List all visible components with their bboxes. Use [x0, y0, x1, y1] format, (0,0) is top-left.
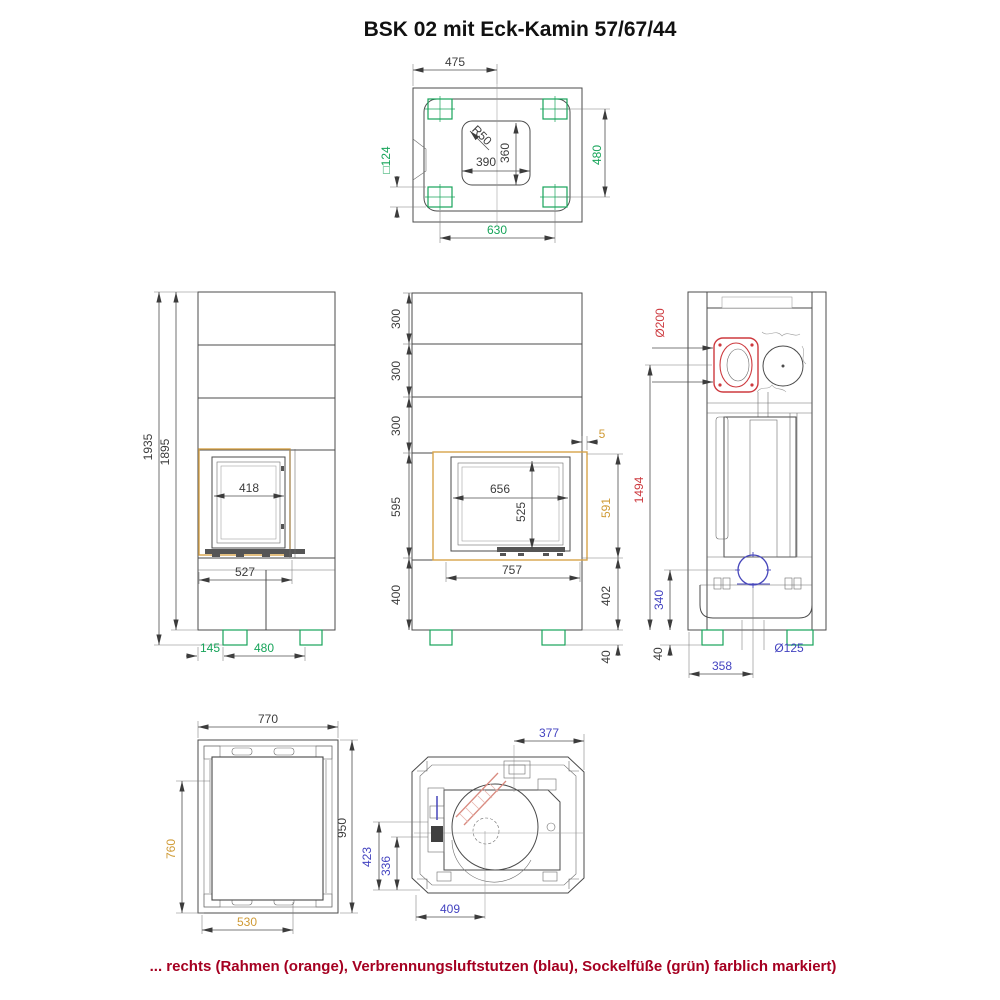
- dim-door-width-left: 418: [239, 481, 259, 495]
- dim-stub-depth-b: 336: [379, 856, 393, 876]
- dim-panel-depth: 760: [164, 839, 178, 859]
- dim-door-height-main: 525: [514, 502, 528, 522]
- dim-top-opening-depth: 360: [498, 143, 512, 163]
- dim-total-height: 1935: [141, 433, 155, 460]
- base-panel: [212, 757, 323, 900]
- drawing-canvas: BSK 02 mit Eck-Kamin 57/67/44: [0, 0, 1000, 1000]
- dim-fan-offset: 409: [440, 902, 460, 916]
- dim-body-height: 1895: [158, 438, 172, 465]
- dim-foot-height-side: 40: [651, 647, 665, 661]
- color-legend-caption: ... rechts (Rahmen (orange), Verbrennung…: [150, 958, 837, 975]
- dim-segment-3: 300: [389, 416, 403, 436]
- dim-base-width: 770: [258, 712, 278, 726]
- dim-panel-width: 530: [237, 915, 257, 929]
- dim-top-width: 475: [445, 55, 465, 69]
- dim-top-feet-span: 630: [487, 223, 507, 237]
- technical-drawing-page: BSK 02 mit Eck-Kamin 57/67/44: [0, 0, 1000, 1000]
- dim-top-opening-width: 390: [476, 155, 496, 169]
- dim-frame-height: 591: [599, 498, 613, 518]
- grate-main-view: [497, 547, 565, 552]
- dim-foot-height-main: 40: [599, 650, 613, 664]
- dim-niche-width-left: 527: [235, 565, 255, 579]
- dim-top-foot-size: □124: [379, 146, 393, 174]
- dim-base-depth: 950: [335, 818, 349, 838]
- dim-stub-offset: 358: [712, 659, 732, 673]
- dim-stub-center-height: 340: [652, 590, 666, 610]
- dim-niche-height: 595: [389, 497, 403, 517]
- dim-top-feet-depth: 480: [590, 145, 604, 165]
- page-title: BSK 02 mit Eck-Kamin 57/67/44: [364, 18, 677, 41]
- air-stub-bottom-view: [431, 826, 443, 842]
- dim-foot-offset: 145: [200, 641, 220, 655]
- dim-segment-1: 300: [389, 309, 403, 329]
- dim-stub-depth-a: 423: [360, 847, 374, 867]
- dim-stub-diameter: Ø125: [774, 641, 804, 655]
- dim-flue-offset-bottom: 377: [539, 726, 559, 740]
- dim-flue-diameter: Ø200: [653, 308, 667, 338]
- dim-feet-span-left: 480: [254, 641, 274, 655]
- dim-flue-center-height: 1494: [632, 476, 646, 503]
- dim-frame-offset: 5: [599, 427, 606, 441]
- dim-niche-width-main: 757: [502, 563, 522, 577]
- dim-plinth-height: 400: [389, 585, 403, 605]
- dim-segment-2: 300: [389, 361, 403, 381]
- dim-plinth-height-right: 402: [599, 586, 613, 606]
- dim-door-width-main: 656: [490, 482, 510, 496]
